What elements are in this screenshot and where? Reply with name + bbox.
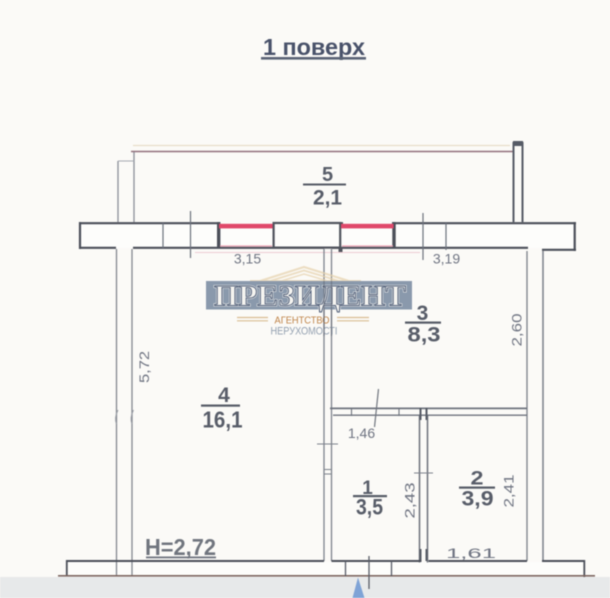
svg-text:5,72: 5,72 [136,351,152,383]
svg-text:3,9: 3,9 [462,488,494,511]
svg-text:1 поверх: 1 поверх [263,34,365,60]
svg-text:НЕРУХОМОСТІ: НЕРУХОМОСТІ [271,326,338,338]
svg-text:2: 2 [471,469,484,490]
svg-text:8,3: 8,3 [408,324,441,347]
svg-text:2,1: 2,1 [313,187,342,210]
svg-text:Н=2,72: Н=2,72 [145,534,216,560]
svg-text:1,46: 1,46 [348,425,375,441]
svg-text:ПРЕЗИДЕНТ: ПРЕЗИДЕНТ [214,280,406,313]
svg-text:5: 5 [322,164,333,186]
svg-text:2,60: 2,60 [509,313,525,346]
svg-text:2,43: 2,43 [402,482,418,518]
svg-text:1,61: 1,61 [446,545,496,561]
svg-text:3,19: 3,19 [433,251,460,267]
svg-text:2,41: 2,41 [501,474,517,507]
svg-text:3,5: 3,5 [356,495,383,520]
svg-text:4: 4 [218,384,230,407]
svg-text:16,1: 16,1 [203,407,243,433]
svg-text:3,15: 3,15 [234,251,261,267]
